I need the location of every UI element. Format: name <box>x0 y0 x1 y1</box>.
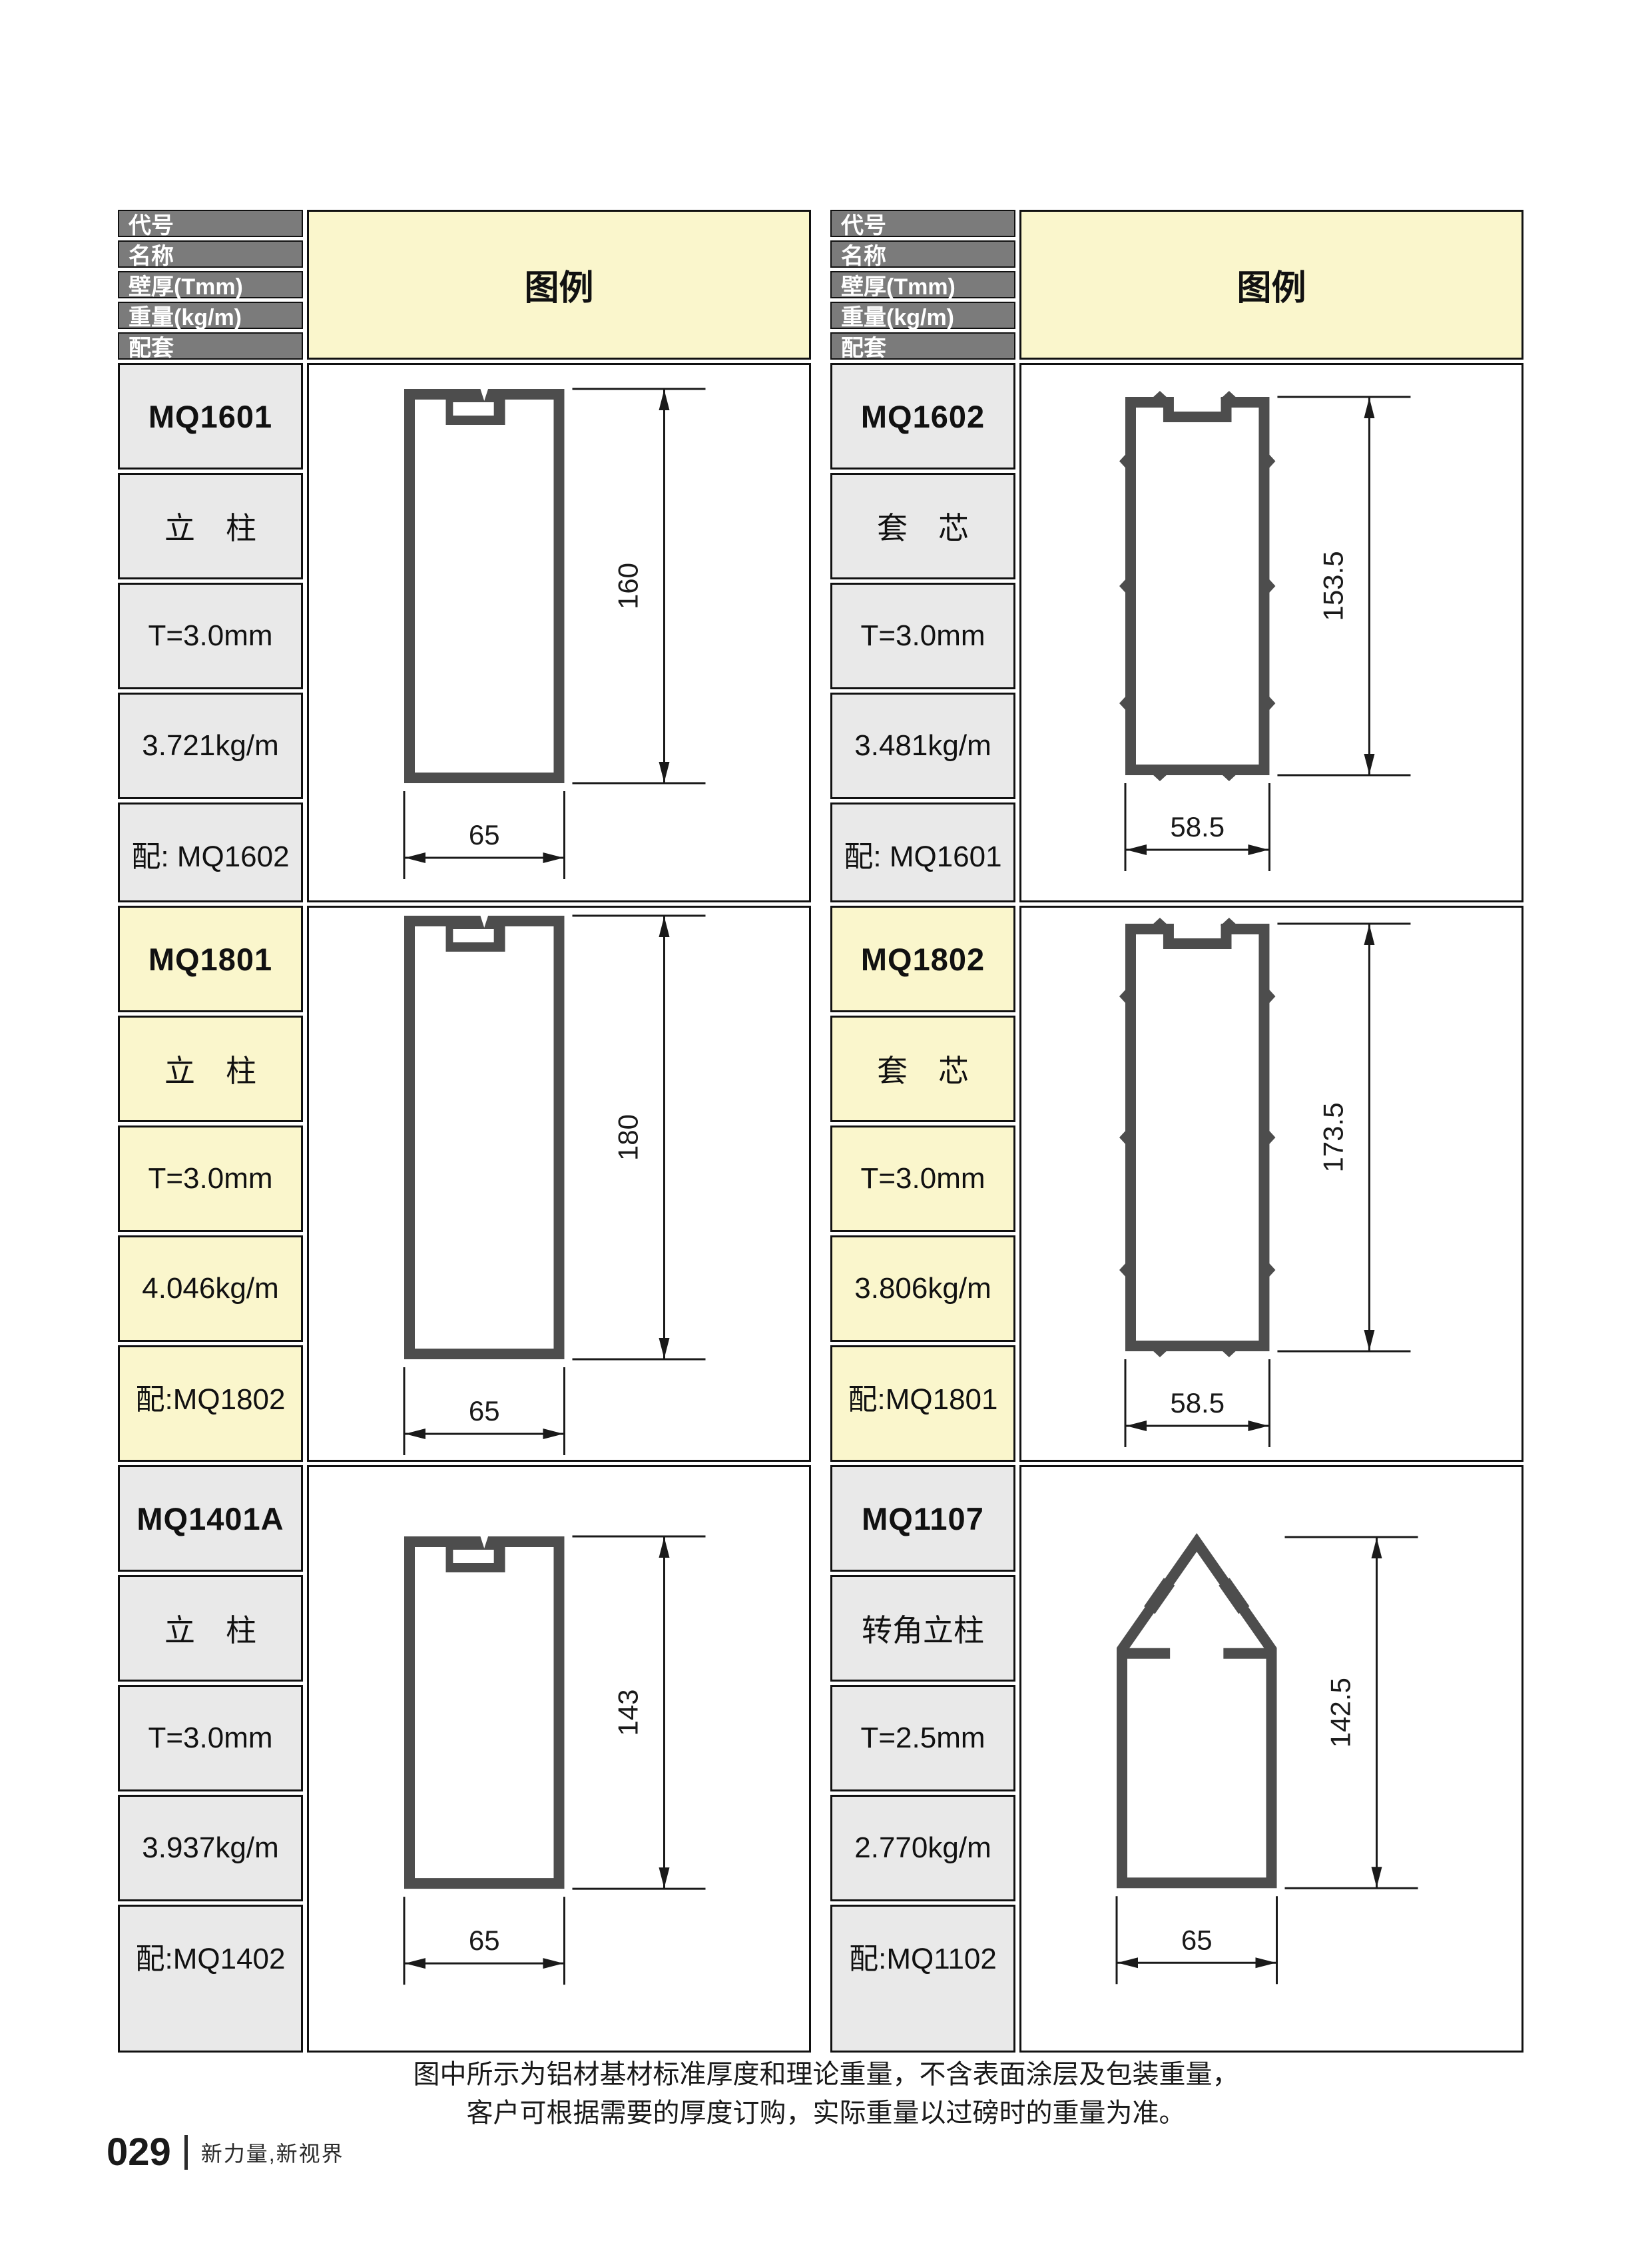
profile-drawing: 142.565 <box>1019 1465 1523 2053</box>
svg-text:65: 65 <box>469 1395 500 1427</box>
profile-code: MQ1107 <box>830 1465 1015 1572</box>
profile-match: 配:MQ1801 <box>830 1345 1015 1462</box>
profile-drawing: 153.558.5 <box>1019 363 1523 902</box>
header-cell-thickness: 壁厚(Tmm) <box>830 271 1015 298</box>
profile-drawing: 16065 <box>307 363 811 902</box>
footer-tagline: 新力量,新视界 <box>201 2137 344 2168</box>
header-cell-weight: 重量(kg/m) <box>830 302 1015 329</box>
footnote-line-1: 图中所示为铝材基材标准厚度和理论重量，不含表面涂层及包装重量， <box>0 2055 1652 2094</box>
profile-code: MQ1802 <box>830 906 1015 1012</box>
profile-thickness: T=3.0mm <box>118 1685 303 1791</box>
catalog-page: 代号 名称 壁厚(Tmm) 重量(kg/m) 配套 图例 MQ1601 立 柱 … <box>0 0 1652 2241</box>
profile-thickness: T=3.0mm <box>830 1125 1015 1232</box>
profile-weight: 3.481kg/m <box>830 693 1015 799</box>
profile-drawing-svg: 16065 <box>384 382 734 883</box>
profile-code: MQ1601 <box>118 363 303 470</box>
svg-text:142.5: 142.5 <box>1325 1678 1356 1748</box>
legend-header: 图例 <box>1019 210 1523 360</box>
profile-thickness: T=3.0mm <box>118 583 303 689</box>
header-cell-thickness: 壁厚(Tmm) <box>118 271 303 298</box>
svg-text:180: 180 <box>613 1114 644 1160</box>
profile-weight: 3.806kg/m <box>830 1235 1015 1342</box>
profile-match: 配:MQ1102 <box>830 1905 1015 2053</box>
profile-match: 配: MQ1601 <box>830 802 1015 902</box>
page-footer: 029 新力量,新视界 <box>107 2130 344 2174</box>
header-cell-code: 代号 <box>830 210 1015 237</box>
header-cell-name: 名称 <box>118 240 303 268</box>
profile-weight: 4.046kg/m <box>118 1235 303 1342</box>
profile-name: 立 柱 <box>118 1016 303 1122</box>
profile-drawing: 14365 <box>307 1465 811 2053</box>
header-cell-name: 名称 <box>830 240 1015 268</box>
svg-text:173.5: 173.5 <box>1317 1102 1348 1172</box>
svg-text:58.5: 58.5 <box>1170 1387 1225 1418</box>
svg-text:65: 65 <box>1181 1924 1213 1955</box>
profile-code: MQ1801 <box>118 906 303 1012</box>
svg-text:160: 160 <box>613 563 644 609</box>
profile-drawing-svg: 173.558.5 <box>1105 917 1438 1451</box>
page-number: 029 <box>107 2130 171 2174</box>
header-cell-code: 代号 <box>118 210 303 237</box>
profile-match: 配: MQ1602 <box>118 802 303 902</box>
profile-name: 立 柱 <box>118 473 303 579</box>
header-cell-match: 配套 <box>118 332 303 360</box>
profile-code: MQ1602 <box>830 363 1015 470</box>
svg-text:65: 65 <box>469 819 500 850</box>
profile-name: 套 芯 <box>830 473 1015 579</box>
legend-header: 图例 <box>307 210 811 360</box>
profile-weight: 3.937kg/m <box>118 1795 303 1901</box>
profile-name: 转角立柱 <box>830 1575 1015 1682</box>
profile-table-right: 代号 名称 壁厚(Tmm) 重量(kg/m) 配套 图例 MQ1602 套 芯 … <box>830 210 1523 2053</box>
header-cell-match: 配套 <box>830 332 1015 360</box>
profile-name: 套 芯 <box>830 1016 1015 1122</box>
profile-code: MQ1401A <box>118 1465 303 1572</box>
profile-thickness: T=3.0mm <box>118 1125 303 1232</box>
profile-drawing-svg: 14365 <box>384 1530 734 1989</box>
profile-drawing-svg: 142.565 <box>1097 1530 1446 1988</box>
profile-match: 配:MQ1402 <box>118 1905 303 2053</box>
profile-thickness: T=2.5mm <box>830 1685 1015 1791</box>
footer-divider <box>184 2135 188 2170</box>
header-cell-weight: 重量(kg/m) <box>118 302 303 329</box>
profile-drawing: 18065 <box>307 906 811 1462</box>
svg-text:65: 65 <box>469 1925 500 1956</box>
svg-text:143: 143 <box>613 1689 644 1736</box>
profile-thickness: T=3.0mm <box>830 583 1015 689</box>
svg-text:153.5: 153.5 <box>1317 551 1348 621</box>
profile-drawing-svg: 18065 <box>384 909 734 1459</box>
profile-match: 配:MQ1802 <box>118 1345 303 1462</box>
profile-weight: 2.770kg/m <box>830 1795 1015 1901</box>
profile-weight: 3.721kg/m <box>118 693 303 799</box>
profile-name: 立 柱 <box>118 1575 303 1682</box>
footnote-line-2: 客户可根据需要的厚度订购，实际重量以过磅时的重量为准。 <box>0 2094 1652 2132</box>
profile-drawing: 173.558.5 <box>1019 906 1523 1462</box>
profile-table-left: 代号 名称 壁厚(Tmm) 重量(kg/m) 配套 图例 MQ1601 立 柱 … <box>118 210 811 2053</box>
svg-text:58.5: 58.5 <box>1170 811 1225 842</box>
footnote: 图中所示为铝材基材标准厚度和理论重量，不含表面涂层及包装重量， 客户可根据需要的… <box>0 2055 1652 2132</box>
profile-drawing-svg: 153.558.5 <box>1105 390 1438 875</box>
